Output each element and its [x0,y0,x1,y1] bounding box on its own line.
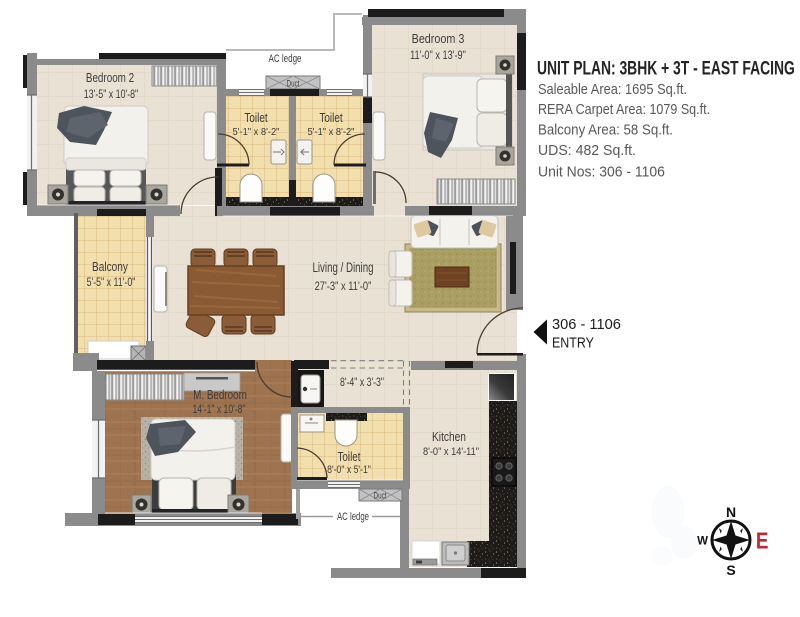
svg-text:13'-5" x 10'-8": 13'-5" x 10'-8" [84,89,139,101]
svg-text:Saleable Area: 1695 Sq.ft.: Saleable Area: 1695 Sq.ft. [538,81,687,97]
svg-text:5'-1" x 8'-2": 5'-1" x 8'-2" [232,127,279,139]
svg-text:AC ledge: AC ledge [337,511,369,524]
svg-text:UDS: 482 Sq.ft.: UDS: 482 Sq.ft. [538,143,636,159]
svg-text:8'-0" x 5'-1": 8'-0" x 5'-1" [327,464,371,476]
svg-text:Bedroom 3: Bedroom 3 [412,31,465,46]
svg-text:Balcony: Balcony [92,261,128,274]
svg-text:N: N [726,504,736,520]
svg-text:8'-4" x 3'-3": 8'-4" x 3'-3" [340,377,384,389]
svg-text:Bedroom 2: Bedroom 2 [86,72,134,86]
svg-text:306 - 1106: 306 - 1106 [552,317,621,333]
svg-text:ENTRY: ENTRY [552,334,594,350]
svg-text:Toilet: Toilet [337,451,361,464]
svg-text:W: W [697,536,708,548]
svg-text:Toilet: Toilet [244,112,268,125]
svg-text:8'-0" x 14'-11": 8'-0" x 14'-11" [423,446,479,458]
svg-text:Balcony Area: 58 Sq.ft.: Balcony Area: 58 Sq.ft. [538,121,673,138]
svg-text:E: E [756,529,769,554]
svg-text:Unit Nos: 306 - 1106: Unit Nos: 306 - 1106 [538,164,665,180]
svg-text:UNIT PLAN: 3BHK + 3T - EAST FA: UNIT PLAN: 3BHK + 3T - EAST FACING [537,57,795,79]
svg-text:27'-3" x 11'-0": 27'-3" x 11'-0" [315,280,372,293]
svg-text:Duct: Duct [374,490,388,500]
svg-text:Kitchen: Kitchen [432,431,466,444]
svg-text:5'-5" x 11'-0": 5'-5" x 11'-0" [87,277,136,289]
svg-text:Living / Dining: Living / Dining [313,261,374,276]
svg-text:M. Bedroom: M. Bedroom [193,389,247,403]
svg-text:AC ledge: AC ledge [268,53,301,66]
svg-text:Duct: Duct [287,78,301,88]
svg-text:Toilet: Toilet [319,112,343,125]
svg-text:11'-0" x 13'-9": 11'-0" x 13'-9" [410,50,466,62]
svg-text:RERA Carpet Area: 1079 Sq.ft.: RERA Carpet Area: 1079 Sq.ft. [538,101,710,117]
svg-text:5'-1" x 8'-2": 5'-1" x 8'-2" [307,127,354,139]
svg-text:S: S [726,562,735,578]
svg-text:14'-1" x 10'-8": 14'-1" x 10'-8" [192,404,245,416]
